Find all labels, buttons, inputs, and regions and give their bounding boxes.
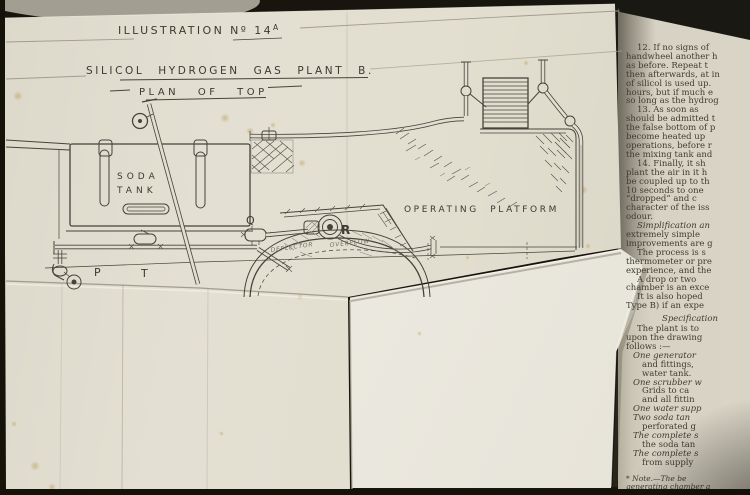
book-text-line: Type B) if an expe <box>626 302 750 311</box>
photo-border-left <box>0 0 5 495</box>
soda-tank: SODA TANK <box>6 140 253 239</box>
book-text-line: Specification <box>626 315 750 324</box>
cooler-coil <box>461 60 581 250</box>
illustration-heading: ILLUSTRATION Nº 14A <box>118 23 281 37</box>
label-p: P <box>94 266 101 279</box>
plan-subtitle: PLAN OF TOP <box>139 87 268 98</box>
main-pipe: P T <box>52 230 257 289</box>
label-operating-platform: OPERATING PLATFORM <box>404 205 559 215</box>
soda-tank-label-1: SODA <box>117 172 159 182</box>
fold-creases <box>6 11 622 489</box>
plant-title: SILICOL HYDROGEN GAS PLANT B. <box>86 65 374 77</box>
label-q: Q <box>246 214 255 227</box>
corner-shadow <box>620 395 750 495</box>
wall-hatching <box>250 119 464 173</box>
label-t: T <box>140 267 148 280</box>
soda-tank-label-2: TANK <box>116 186 157 196</box>
title-block: ILLUSTRATION Nº 14A SILICOL HYDROGEN GAS… <box>86 23 374 100</box>
photo-of-book: ILLUSTRATION Nº 14A SILICOL HYDROGEN GAS… <box>0 0 750 495</box>
